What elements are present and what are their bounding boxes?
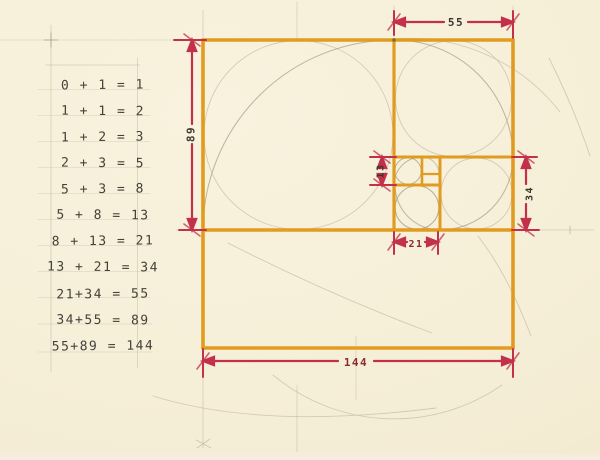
label-55: 55 xyxy=(448,16,464,29)
label-89: 89 xyxy=(185,126,198,142)
scanned-fibonacci-drawing: 55 89 13 34 21 144 0 + 1 = 1 1 + 1 = 2 1… xyxy=(0,0,600,460)
pencil-guide-lines xyxy=(0,2,594,452)
junction-dot xyxy=(392,38,396,42)
golden-rectangle-construction: 55 89 13 34 21 144 xyxy=(0,0,600,460)
orange-square-grid xyxy=(203,40,513,348)
label-21: 21 xyxy=(408,239,423,250)
label-144: 144 xyxy=(344,356,368,369)
dimension-labels: 55 89 13 34 21 144 xyxy=(185,16,536,369)
label-34: 34 xyxy=(525,186,536,201)
pencil-spiral-arcs xyxy=(203,40,513,230)
red-dimension-lines xyxy=(174,11,539,377)
label-13: 13 xyxy=(376,163,387,178)
